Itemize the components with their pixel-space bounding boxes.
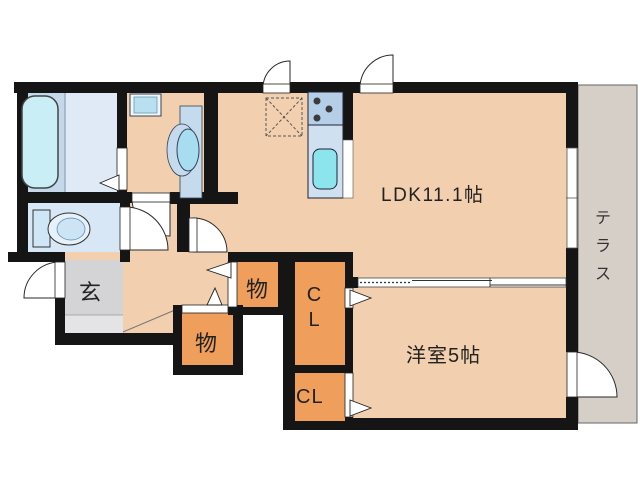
ldk-window: [566, 148, 578, 248]
kitchen-sink: [313, 149, 337, 189]
washing-machine-pan: [130, 94, 161, 116]
western-room-door-leaf: [567, 352, 577, 397]
washroom-door-leaf: [132, 193, 170, 202]
closet-upper-label: CL: [304, 283, 324, 333]
north-door-leaf-2: [360, 84, 393, 93]
terrace-label: テラス: [592, 205, 614, 289]
counter-edge: [343, 140, 353, 198]
entrance-label: 玄: [79, 275, 101, 307]
toilet: [33, 210, 90, 247]
ldk-label: LDK11.1帖: [381, 180, 485, 207]
entrance-door-leaf: [55, 262, 65, 298]
bathroom-wash-zone: [65, 92, 117, 192]
entrance-step: [65, 315, 123, 333]
sliding-door: [358, 278, 566, 287]
bathtub: [22, 96, 58, 188]
stove: [308, 92, 343, 125]
closet-lower-label: CL: [296, 386, 324, 409]
floorplan-canvas: LDK11.1帖 洋室5帖 テラス 玄 物 物 CL CL: [0, 0, 640, 480]
western-room-label: 洋室5帖: [406, 339, 481, 368]
north-door-arc-2: [360, 55, 393, 88]
toilet-door-leaf: [120, 207, 130, 250]
storage-lower-label: 物: [195, 326, 217, 358]
storage-upper-label: 物: [246, 272, 268, 304]
ldk-door-leaf: [189, 218, 197, 252]
north-door-leaf-1: [263, 84, 290, 93]
storage-lower-door-opening: [182, 305, 228, 313]
